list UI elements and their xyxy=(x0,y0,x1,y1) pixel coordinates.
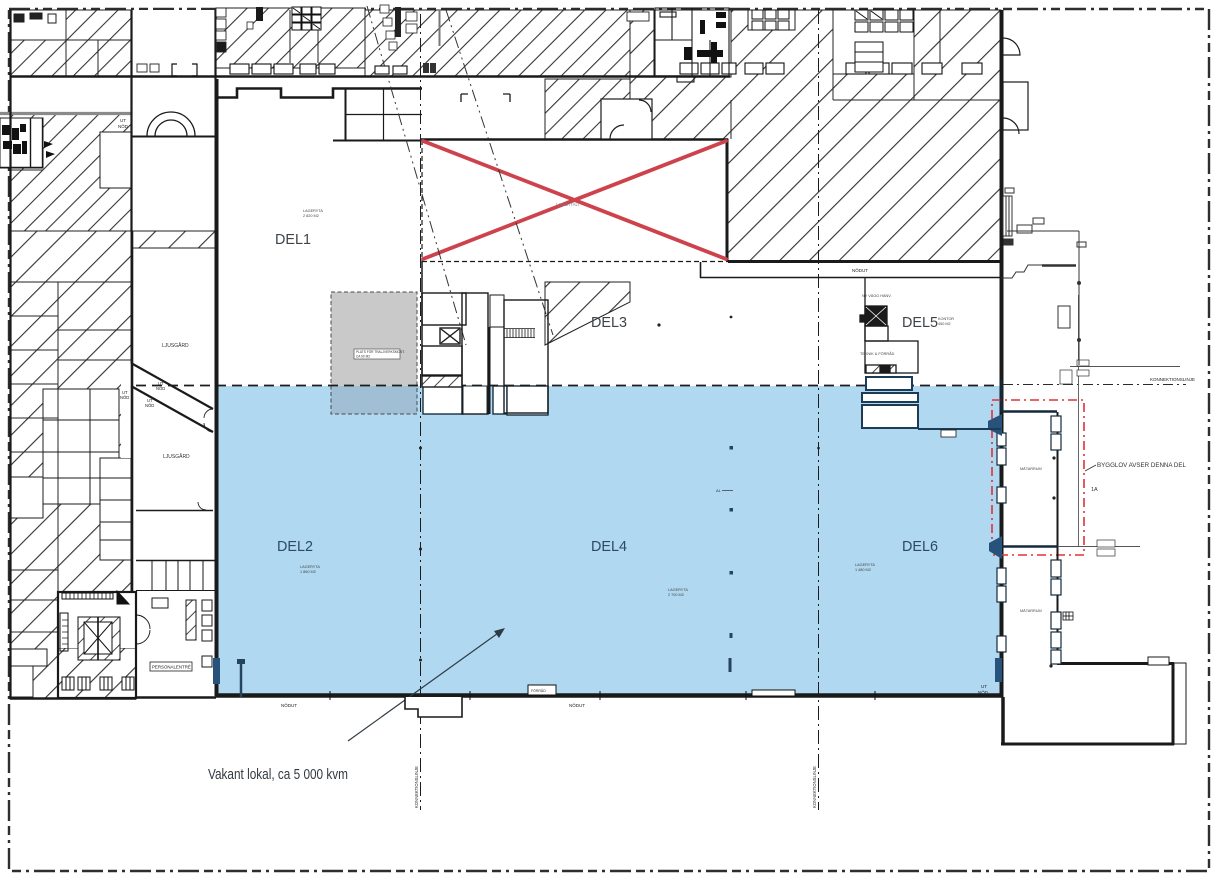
svg-text:LAGERYTA: LAGERYTA xyxy=(668,588,688,592)
svg-text:LAGERYTA: LAGERYTA xyxy=(300,565,320,569)
svg-text:Vakant lokal, ca 5 000 kvm: Vakant lokal, ca 5 000 kvm xyxy=(208,767,348,783)
svg-text:450 M2: 450 M2 xyxy=(938,322,951,326)
svg-text:TEKNIK & FÖRRÅD: TEKNIK & FÖRRÅD xyxy=(860,351,895,356)
svg-text:DEL5: DEL5 xyxy=(902,314,938,331)
svg-text:FÖRRÅD: FÖRRÅD xyxy=(531,688,546,693)
svg-text:LJUSGÅRD: LJUSGÅRD xyxy=(163,453,190,460)
svg-text:NÖDUT: NÖDUT xyxy=(852,267,868,273)
svg-text:MÄTARRUM: MÄTARRUM xyxy=(1020,467,1042,471)
svg-text:NÖD: NÖD xyxy=(156,386,165,391)
svg-text:KONNEKTIONSLINJE: KONNEKTIONSLINJE xyxy=(812,766,817,808)
svg-text:PERSONALENTRÉ: PERSONALENTRÉ xyxy=(152,665,191,670)
svg-text:NÖD: NÖD xyxy=(118,123,129,129)
svg-text:UT: UT xyxy=(981,684,987,689)
svg-text:NÖD: NÖD xyxy=(145,403,154,408)
svg-text:NY VÄGG HÄNV.: NY VÄGG HÄNV. xyxy=(862,294,892,298)
svg-text:BYGGLOV AVSER DENNA DEL: BYGGLOV AVSER DENNA DEL xyxy=(1097,462,1187,469)
svg-text:LJUSGÅRD: LJUSGÅRD xyxy=(162,342,189,349)
svg-text:KONNEKTIONSLINJE: KONNEKTIONSLINJE xyxy=(1150,377,1195,382)
svg-text:NÖD: NÖD xyxy=(120,395,129,400)
svg-text:2 820 M2: 2 820 M2 xyxy=(303,214,319,218)
svg-text:DEL2: DEL2 xyxy=(277,538,313,555)
svg-text:DEL3: DEL3 xyxy=(591,314,627,331)
svg-text:KONNEKTIONSLINJE: KONNEKTIONSLINJE xyxy=(414,766,419,808)
svg-text:LAGERYTA: LAGERYTA xyxy=(303,209,323,213)
svg-text:NÖD: NÖD xyxy=(978,689,989,695)
svg-text:MÄTARRUM: MÄTARRUM xyxy=(1020,609,1042,613)
svg-text:LAGERYTA: LAGERYTA xyxy=(855,563,875,567)
svg-text:DEL6: DEL6 xyxy=(902,538,938,555)
svg-text:PLATS FÖR TRALJVERKSMONT.: PLATS FÖR TRALJVERKSMONT. xyxy=(356,350,405,354)
svg-text:1 480 M2: 1 480 M2 xyxy=(855,568,871,572)
svg-text:CA 90 M2: CA 90 M2 xyxy=(356,355,370,359)
svg-text:2 700 M2: 2 700 M2 xyxy=(668,593,684,597)
svg-text:NÖDUT: NÖDUT xyxy=(281,702,297,708)
svg-text:AL: AL xyxy=(716,488,722,493)
svg-text:KONTOR: KONTOR xyxy=(938,317,954,321)
svg-text:LAGERTÄLT: LAGERTÄLT xyxy=(556,202,580,207)
svg-text:1 860 M2: 1 860 M2 xyxy=(300,570,316,574)
svg-text:DEL4: DEL4 xyxy=(591,538,627,555)
svg-text:UT: UT xyxy=(120,118,126,123)
svg-text:NÖDUT: NÖDUT xyxy=(569,702,585,708)
svg-text:DEL1: DEL1 xyxy=(275,231,311,248)
svg-text:1A: 1A xyxy=(1091,487,1098,493)
